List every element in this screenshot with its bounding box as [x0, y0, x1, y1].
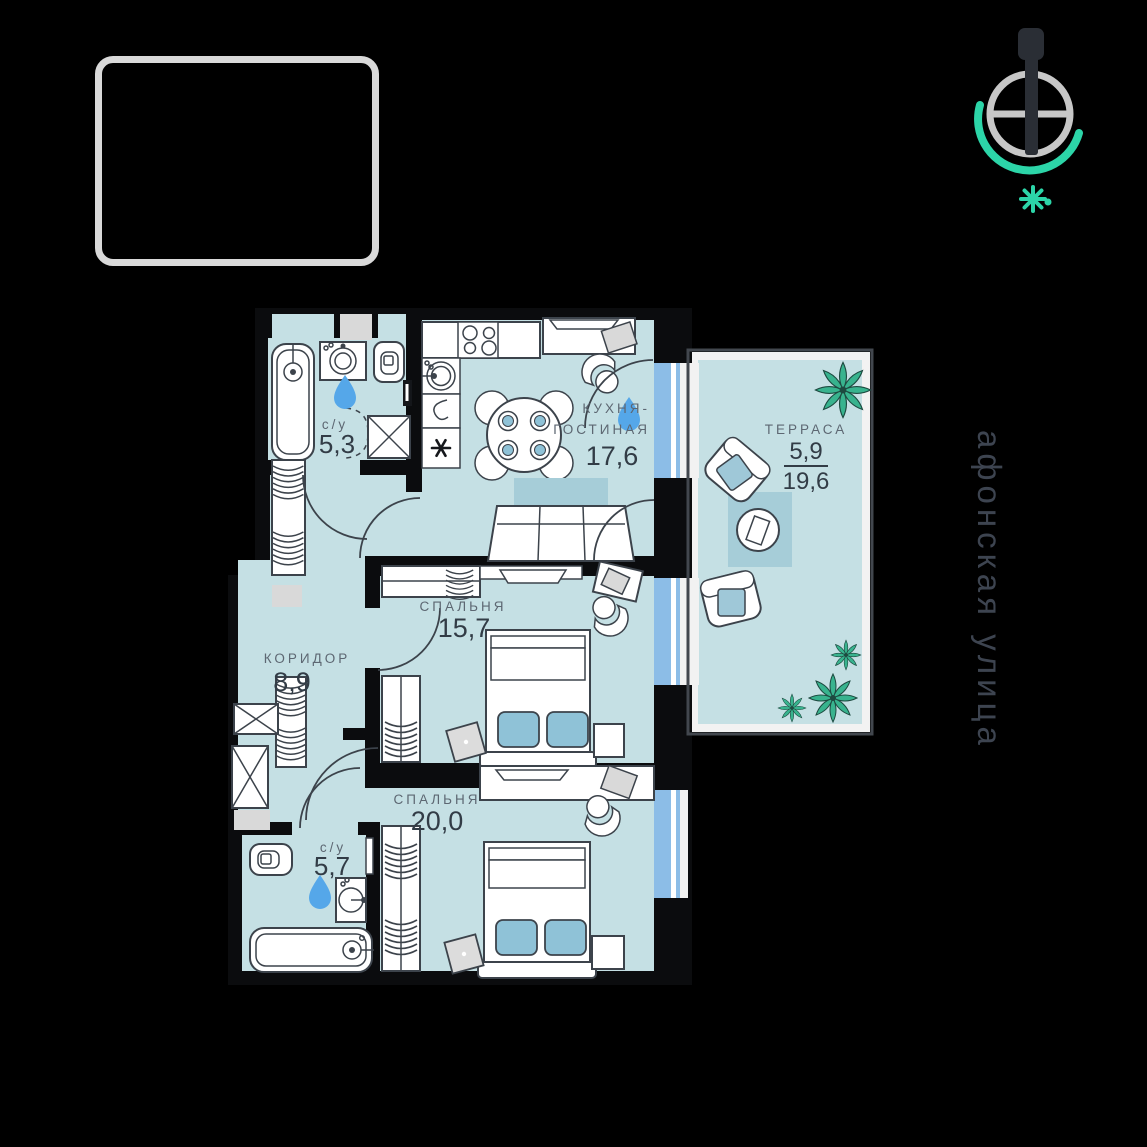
nightstand: [592, 936, 624, 969]
bed: [480, 630, 596, 768]
plant-icon: [778, 694, 806, 722]
terrace-area-total: 19,6: [783, 468, 830, 495]
radiator: [272, 460, 305, 575]
plant-icon: [831, 640, 861, 670]
bathtub: [250, 928, 374, 972]
tv: [500, 570, 566, 583]
kitchen-label-1: КУХНЯ-: [582, 401, 650, 416]
washbasin: [336, 878, 367, 922]
stove: [458, 322, 498, 358]
bathroom1-area: 5,3: [319, 429, 355, 459]
window-terrace-2: [654, 578, 699, 685]
bed: [478, 842, 596, 978]
fridge: [422, 394, 460, 428]
sofa: [488, 506, 634, 561]
kitchen-area: 17,6: [586, 441, 639, 471]
toilet: [374, 342, 404, 382]
pillow: [498, 712, 539, 747]
pillow: [547, 712, 588, 747]
kitchen-desk: [543, 318, 637, 354]
wardrobe: [382, 676, 420, 762]
bathroom2-area: 5,7: [314, 851, 350, 881]
north-needle-icon: [1018, 28, 1044, 155]
headboard: [478, 962, 596, 978]
shaft-crossed: [234, 704, 278, 734]
kitchen-label-2: ГОСТИНАЯ: [553, 422, 650, 437]
vent-shaft: [340, 314, 372, 340]
vent-shaft: [234, 810, 270, 830]
nightstand: [594, 724, 624, 757]
bedroom2-label: СПАЛЬНЯ: [394, 792, 481, 807]
door-leaf: [366, 838, 373, 874]
terrace-label: ТЕРРАСА: [765, 422, 848, 437]
bedroom1-area: 15,7: [438, 613, 491, 643]
compass-icon: [978, 28, 1079, 211]
floorplan-svg: с/у 5,3 КУХНЯ- ГОСТИНАЯ 17,6 ТЕРРАСА 5,9…: [0, 0, 1147, 1147]
bedroom2-desk: [480, 766, 654, 800]
corridor-area: 8,9: [273, 667, 311, 697]
plant-icon: [815, 362, 870, 417]
shaft-crossed: [232, 746, 268, 808]
side-table: [737, 509, 779, 551]
pillow: [545, 920, 586, 955]
windows: [654, 363, 699, 898]
window-kitchen-terrace-door: [654, 363, 699, 478]
terrace-area-counted: 5,9: [789, 438, 822, 465]
bedroom2-area: 20,0: [411, 806, 464, 836]
corridor-label: КОРИДОР: [264, 651, 351, 666]
street-label: афонская улица: [971, 430, 1008, 750]
pillow: [496, 920, 537, 955]
vent-shaft: [272, 585, 302, 607]
window-bedroom2: [654, 790, 688, 898]
plant-icon: [809, 674, 857, 722]
wardrobe: [382, 826, 420, 971]
toilet: [250, 844, 292, 875]
sun-icon: [1021, 187, 1045, 211]
bedroom1-label: СПАЛЬНЯ: [420, 599, 507, 614]
floorplan-page: с/у 5,3 КУХНЯ- ГОСТИНАЯ 17,6 ТЕРРАСА 5,9…: [0, 0, 1147, 1147]
